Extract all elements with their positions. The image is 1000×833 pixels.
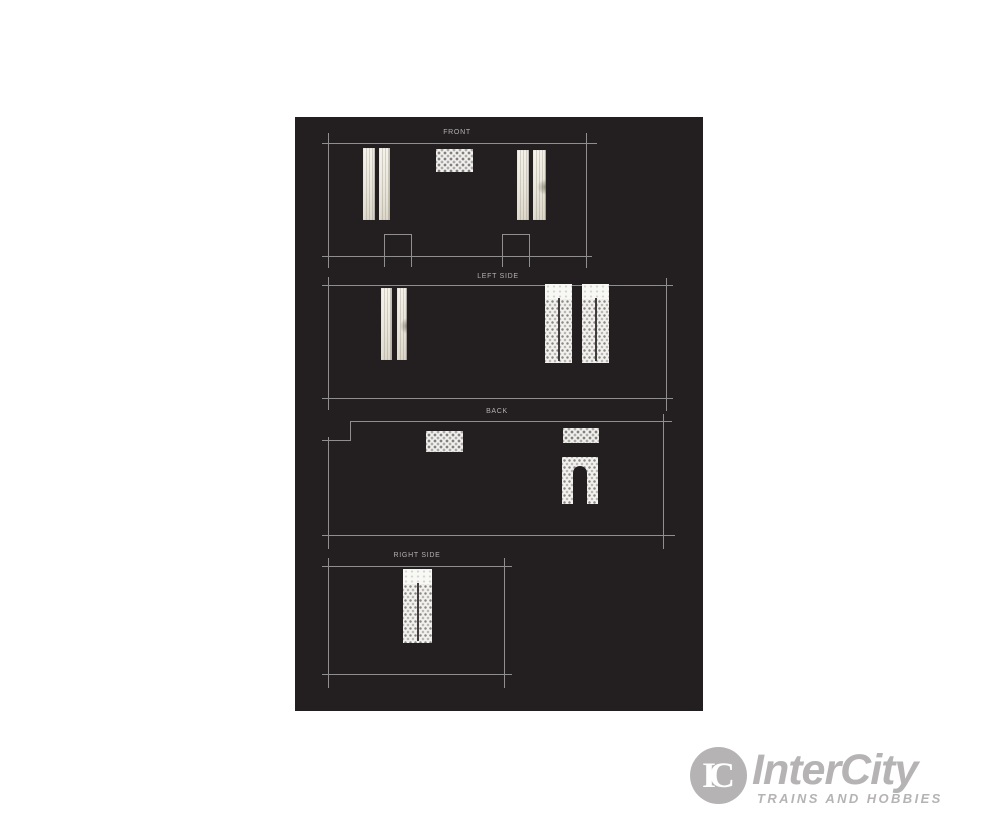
front-lace-valance [436,149,473,172]
door-arch-cutout [573,466,587,504]
lace-rod-pocket [582,284,609,299]
lace-centre-split [417,583,419,641]
lace-centre-split [558,298,560,361]
front-curtain-left-b [379,148,390,220]
front-curtain-left-a [363,148,375,220]
back-door-lace-curtain [562,457,598,504]
left-side-lace-panel-a [545,284,572,363]
right-side-base-line [322,674,512,675]
intercity-logo-icon: IC [690,747,747,804]
left-side-lace-panel-b [582,284,609,363]
back-top-line [350,421,672,422]
intercity-logo-tagline: TRAINS AND HOBBIES [757,791,943,806]
back-step-vertical-line [350,421,351,441]
left-side-top-line [322,285,673,286]
lace-rod-pocket [545,284,572,299]
right-side-elevation-label: RIGHT SIDE [394,552,441,559]
product-image: FRONT LEFT SIDE [0,0,1000,833]
right-side-lace-panel [403,569,432,643]
left-side-curtain-b [397,288,407,360]
front-door1-top-line [384,234,412,235]
intercity-logo-name: InterCity [752,746,917,795]
lace-centre-split [595,298,597,361]
right-side-left-line [328,558,329,688]
front-door2-right-line [529,234,530,267]
left-side-right-line [666,278,667,411]
front-left-line [328,133,329,268]
back-base-line [322,535,675,536]
front-right-line [586,133,587,268]
back-step-horizontal-line [322,440,351,441]
back-elevation-label: BACK [486,408,508,415]
curtain-sheet-artwork: FRONT LEFT SIDE [295,117,703,711]
front-elevation-label: FRONT [443,129,471,136]
right-side-top-line [322,566,512,567]
front-top-line [322,143,597,144]
front-door2-top-line [502,234,530,235]
back-lace-valance-right [563,428,599,443]
left-side-curtain-a [381,288,392,360]
left-side-base-line [322,398,673,399]
back-lace-valance-left [426,431,463,452]
right-side-right-line [504,558,505,688]
left-side-elevation-label: LEFT SIDE [477,273,519,280]
lace-rod-pocket [403,569,432,584]
front-door2-left-line [502,234,503,267]
back-right-line [663,414,664,549]
front-door1-right-line [411,234,412,267]
left-side-left-line [328,277,329,410]
front-curtain-right-b [533,150,546,220]
intercity-monogram: IC [702,754,728,796]
back-left-line [328,437,329,549]
front-base-line [322,256,592,257]
front-curtain-right-a [517,150,529,220]
front-door1-left-line [384,234,385,267]
